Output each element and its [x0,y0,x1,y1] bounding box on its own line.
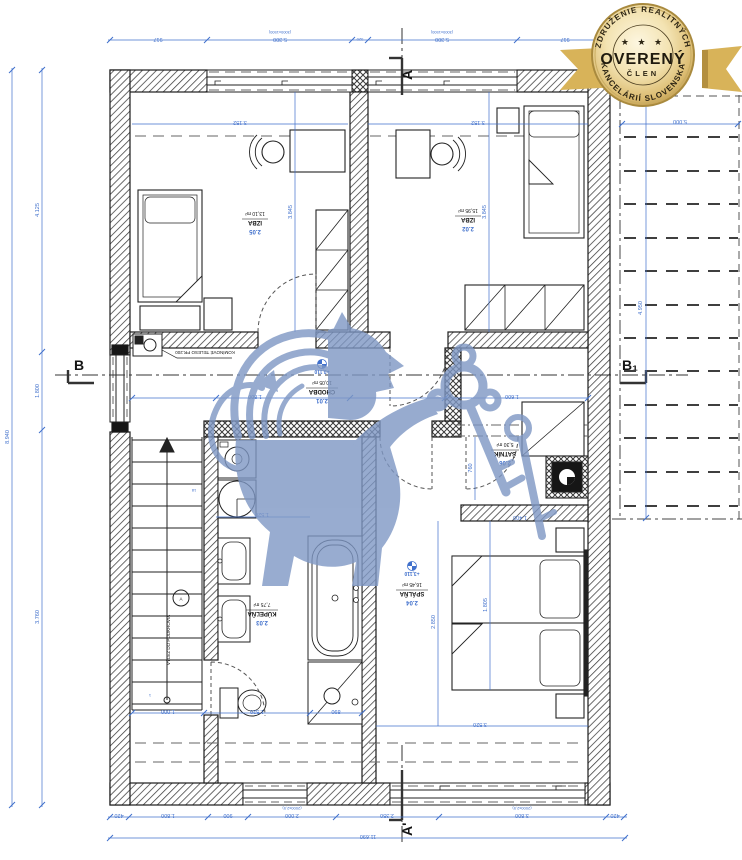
dimension-text: (3000x1500) [430,30,453,35]
chair [262,141,284,163]
desk [290,130,345,172]
section-marker-b-left: B [74,357,84,373]
chest [140,306,200,330]
badge-stars: ★ ★ ★ [621,37,665,47]
side-table [204,298,232,330]
wall-segment [110,70,130,355]
interior-wall [432,421,461,437]
dimension-text: 1.800 [161,812,175,818]
pillow [540,560,580,618]
floor-plan-drawing: A VÝLEZ DO PODKROVIA [0,0,742,860]
room-name: KÚPEĽŇA [247,610,277,618]
nightstand [556,528,584,552]
window [368,70,517,92]
room-area: 13,10 m² [245,210,265,216]
bathtub-drain [332,595,338,601]
master-bedroom-furniture [452,528,588,718]
dimension-text: 1.520 [250,708,264,714]
dimension-text: 5.300 [435,36,449,42]
room-number: 2.01 [316,397,328,403]
room-area: 15,95 m² [458,207,478,213]
dimension-text: 1.805 [483,598,489,612]
dimension-text: 3.520 [473,721,487,727]
toilet-tank [220,688,238,718]
dimension-text: 2.350 [380,812,394,818]
attic-marker-letter: A [179,597,182,602]
dimension-text: 4.125 [35,203,41,217]
room-number: 2.03 [256,619,268,625]
dimension-text: 3.152 [233,119,247,125]
dimension-text: 3.800 [515,812,529,818]
dimension-text: 1.400 [513,514,527,520]
chair [431,143,453,165]
pillow [145,197,195,223]
dimension-text: 1.600 [505,393,519,399]
wall-pier [352,70,368,92]
section-marker-a-bottom: A' [399,823,415,836]
room-name: IZBA [247,219,262,225]
interior-wall [204,437,218,660]
room-number: 2.05 [249,228,261,234]
dimension-text: 4.950 [638,301,644,315]
dimension-text: 3.845 [482,205,488,219]
room-name: IZBA [460,216,475,222]
room-number: 2.02 [462,225,474,231]
dimension-text: (2000x2,5) [512,806,532,811]
dimension-text: 420 [114,812,123,818]
dimension-text: 520 [356,37,363,42]
room-area: 5,30 m² [496,441,513,447]
dimension-text: 1.800 [35,384,41,398]
desk [396,130,430,178]
dimension-text: 1.000 [161,708,175,714]
wall-segment [110,432,130,805]
window-jamb [112,345,128,355]
dimension-text: 890 [331,708,340,714]
dimension-text: 2.850 [431,615,437,629]
dimension-text: 3.152 [471,119,485,125]
nightstand [497,108,519,133]
interior-wall [350,92,368,332]
headboard [584,550,588,696]
dimension-text: 3.845 [288,205,294,219]
window-jamb [112,422,128,432]
floor-plan-page: A VÝLEZ DO PODKROVIA [0,0,742,860]
section-marker-a-top: A [399,70,415,80]
interior-wall [204,421,380,437]
elevation-value: +3,110 [404,570,419,576]
dimension-text: 760 [468,463,474,472]
dimension-text: 8.940 [5,430,11,444]
nightstand [556,694,584,718]
pillow [540,630,580,686]
room-name: SPÁLŇA [399,590,424,598]
wall-segment [588,70,610,805]
dimension-text: 917 [153,36,162,42]
dimension-text: 917 [560,36,569,42]
dimension-text: 420 [610,812,619,818]
room-number: 2.04 [406,599,418,605]
shower-drain [324,688,340,704]
interior-wall [204,715,218,783]
dimension-text: (2000x2,5) [282,806,302,811]
chimney-note: KOMÍNOVÉ TELESO PR.200 [175,350,235,356]
dimension-text: 3.760 [35,610,41,624]
wall-segment [307,783,390,805]
room-area: 7,75 m² [253,601,270,607]
dimension-text: (3000x1500) [268,30,291,35]
room-area: 16,45 m² [402,581,422,587]
dimension-text: 5.000 [673,118,687,124]
dimension-text: 11.690 [360,833,376,839]
badge-title: OVERENÝ [600,49,685,68]
room-name: ŠATNÍK [493,450,516,458]
badge-subtitle: ČLEN [627,69,659,78]
dimension-text: 2.000 [285,812,299,818]
window [207,70,352,92]
dimension-text: 5.300 [273,36,287,42]
attic-access-note: VÝLEZ DO PODKROVIA [165,615,171,665]
dimension-text: 900 [223,812,232,818]
dimension-text: 18 [191,488,196,493]
